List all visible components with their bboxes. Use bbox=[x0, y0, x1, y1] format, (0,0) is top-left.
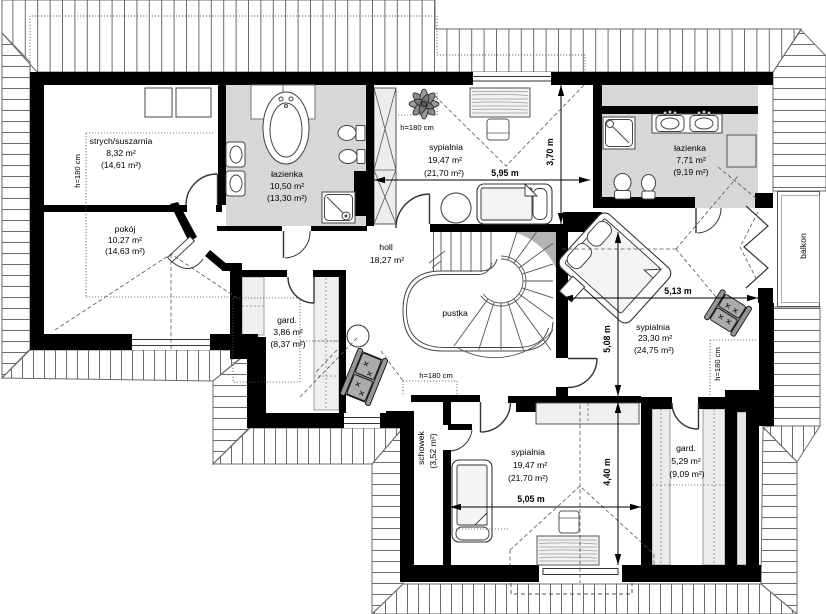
svg-text:(9,09 m²): (9,09 m²) bbox=[669, 469, 704, 479]
svg-text:strych/suszarnia: strych/suszarnia bbox=[90, 136, 153, 146]
svg-text:5,95 m: 5,95 m bbox=[491, 168, 519, 178]
svg-text:(14,61 m²): (14,61 m²) bbox=[101, 160, 141, 170]
svg-text:sypialnia: sypialnia bbox=[511, 447, 545, 457]
svg-text:(3,52 m²): (3,52 m²) bbox=[428, 433, 438, 468]
svg-text:(21,70 m²): (21,70 m²) bbox=[508, 473, 548, 483]
svg-text:h=180 cm: h=180 cm bbox=[419, 371, 453, 380]
svg-text:3,86 m²: 3,86 m² bbox=[273, 327, 303, 337]
svg-text:7,71 m²: 7,71 m² bbox=[676, 155, 706, 165]
svg-text:23,30 m²: 23,30 m² bbox=[638, 333, 672, 343]
svg-text:(13,30 m²): (13,30 m²) bbox=[267, 193, 307, 203]
svg-text:5,13 m: 5,13 m bbox=[664, 286, 692, 296]
svg-text:3,70 m: 3,70 m bbox=[545, 138, 555, 166]
svg-text:10,50 m²: 10,50 m² bbox=[270, 181, 304, 191]
svg-text:5,08 m: 5,08 m bbox=[602, 325, 612, 353]
svg-text:8,32 m²: 8,32 m² bbox=[106, 148, 136, 158]
svg-text:sypialnia: sypialnia bbox=[429, 142, 463, 152]
svg-text:łazienka: łazienka bbox=[271, 169, 303, 179]
svg-text:19,47 m²: 19,47 m² bbox=[513, 460, 547, 470]
svg-text:h=180 cm: h=180 cm bbox=[713, 347, 722, 381]
svg-text:sypialnia: sypialnia bbox=[636, 322, 670, 332]
svg-text:balkon: balkon bbox=[798, 233, 808, 259]
svg-text:5,05 m: 5,05 m bbox=[517, 494, 545, 504]
svg-text:gard.: gard. bbox=[676, 443, 696, 453]
svg-text:5,29 m²: 5,29 m² bbox=[671, 456, 701, 466]
svg-text:h=180 cm: h=180 cm bbox=[73, 154, 82, 188]
svg-text:19,47 m²: 19,47 m² bbox=[428, 155, 462, 165]
svg-text:pokój: pokój bbox=[115, 224, 136, 234]
svg-text:(21,70 m²): (21,70 m²) bbox=[424, 168, 464, 178]
svg-text:pustka: pustka bbox=[442, 308, 468, 318]
svg-text:10,27 m²: 10,27 m² bbox=[108, 235, 142, 245]
svg-text:h=180 cm: h=180 cm bbox=[400, 123, 434, 132]
svg-text:holl: holl bbox=[379, 242, 393, 252]
svg-text:(14,63 m²): (14,63 m²) bbox=[105, 246, 145, 256]
svg-text:18,27 m²: 18,27 m² bbox=[370, 255, 404, 265]
svg-text:(9,19 m²): (9,19 m²) bbox=[673, 167, 708, 177]
svg-text:(24,75 m²): (24,75 m²) bbox=[634, 345, 674, 355]
svg-text:schowek: schowek bbox=[416, 430, 426, 464]
svg-text:gard.: gard. bbox=[277, 315, 297, 325]
svg-text:4,40 m: 4,40 m bbox=[602, 458, 612, 486]
svg-text:(8,37 m²): (8,37 m²) bbox=[270, 339, 305, 349]
svg-text:łazienka: łazienka bbox=[674, 143, 706, 153]
